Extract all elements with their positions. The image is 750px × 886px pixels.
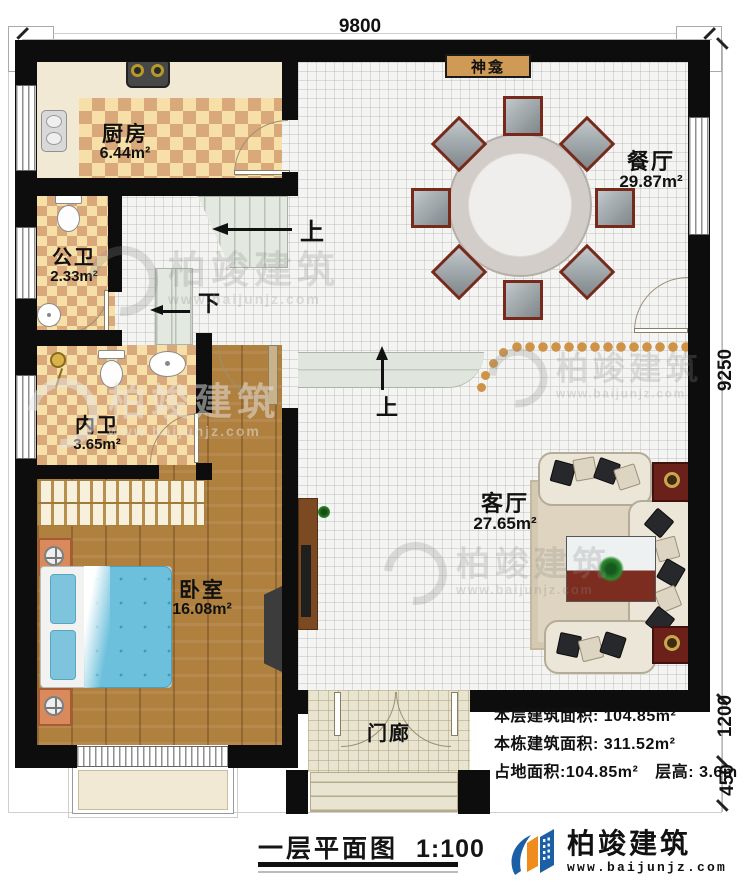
- hall-walkway: [298, 352, 484, 388]
- bed-pillow: [50, 630, 76, 680]
- hall-up-arrowhead: [376, 346, 388, 360]
- wardrobe: [37, 480, 205, 526]
- kitchen-sink-basin: [46, 132, 62, 145]
- living-tv: [301, 545, 311, 617]
- brand-name: 柏竣建筑: [567, 828, 691, 859]
- publicbath-door-leaf: [104, 290, 109, 334]
- dining-side-door-leaf: [634, 328, 688, 333]
- bead-curtain-dot: [477, 383, 486, 392]
- bead-curtain-dot: [499, 348, 508, 357]
- porch-steps: [310, 772, 458, 812]
- nightstand-lamp: [44, 696, 64, 716]
- shrine-label: 神龛: [471, 56, 505, 77]
- info-footprint-height: 占地面积:104.85m² 层高: 3.6m: [494, 758, 738, 782]
- dining-chair: [503, 280, 543, 320]
- toilet-bowl: [57, 205, 80, 232]
- dining-chair: [411, 188, 451, 228]
- dining-table-top: [468, 153, 572, 257]
- stairs-down-label: 下: [198, 286, 220, 318]
- nightstand-lamp: [44, 546, 64, 566]
- porch-post-bottomright: [458, 770, 490, 814]
- wall-publicbath-bottom: [15, 330, 122, 346]
- toilet-bowl: [100, 360, 123, 388]
- private-bath-label: 内卫 3.65m²: [54, 416, 140, 453]
- dining-chair: [503, 96, 543, 136]
- wall-privatebath-bottom: [37, 465, 159, 479]
- stairs-up-arrowhead: [212, 223, 228, 235]
- wall-top: [15, 40, 710, 62]
- washbasin-drain: [165, 361, 170, 366]
- brand-site: www.baijunjz.com: [567, 860, 727, 875]
- dim-top-9800: 9800: [320, 16, 400, 38]
- bedroom-door-leaf: [268, 345, 278, 405]
- bed-pillow: [50, 574, 76, 624]
- brand-logo-icon: [505, 825, 559, 881]
- window-bedroom-bay: [77, 746, 228, 767]
- stove-burner: [131, 64, 144, 77]
- wall-kitchen-right: [282, 62, 298, 120]
- wall-privatebath-right: [196, 333, 212, 413]
- wall-kitchen-bottom: [15, 178, 290, 196]
- privatebath-door-leaf: [194, 413, 199, 463]
- bead-curtain-dot: [489, 359, 498, 368]
- public-bath-label: 公卫 2.33m²: [34, 248, 114, 285]
- stairs-down-arrow: [162, 310, 190, 313]
- stairs-up-label: 上: [300, 212, 324, 247]
- hall-up-arrow: [381, 356, 384, 390]
- plan-title: 一层平面图 1:100: [258, 829, 485, 865]
- porch-post-topleft: [282, 690, 308, 714]
- toilet: [55, 195, 82, 204]
- coffee-table-plant: [598, 556, 624, 582]
- plant-small: [318, 506, 330, 518]
- wall-bedroom-bottom-left: [15, 745, 77, 768]
- side-table-ornament: [664, 635, 680, 651]
- living-label: 客厅 27.65m²: [460, 492, 550, 533]
- bedroom-label: 卧室 16.08m²: [152, 580, 252, 619]
- shrine: 神龛: [445, 54, 531, 78]
- bead-curtain-dot: [481, 371, 490, 380]
- window-publicbath: [16, 227, 36, 299]
- bay-window-sill: [78, 770, 228, 810]
- porch-label: 门廊: [344, 724, 434, 745]
- bed-duvet-fold: [84, 566, 110, 688]
- title-underline: [258, 862, 458, 867]
- toilet: [98, 350, 125, 359]
- wall-kitchen-right-lower: [282, 172, 298, 196]
- window-privatebath: [16, 375, 36, 459]
- entry-door-left-leaf: [334, 692, 341, 736]
- stove-burner: [151, 64, 164, 77]
- bead-curtain-row: [510, 340, 688, 354]
- hall-up-label: 上: [376, 390, 398, 422]
- stairs-down-arrowhead: [150, 305, 163, 315]
- dim-right-9250: 9250: [715, 342, 733, 398]
- washbasin-drain: [47, 313, 51, 317]
- info-building-area: 本栋建筑面积: 311.52m²: [494, 730, 675, 754]
- wall-privatebath-right-lower: [196, 463, 212, 480]
- window-kitchen: [16, 85, 36, 171]
- wall-bedroom-bottom-right: [228, 745, 295, 768]
- kitchen-sink-basin: [46, 115, 62, 128]
- stairs-up-arrow: [228, 228, 292, 231]
- floor-plan-canvas: 9800 9250 1200 450 上 下 上: [0, 0, 750, 886]
- dining-chair: [595, 188, 635, 228]
- dining-label: 餐厅 29.87m²: [606, 150, 696, 191]
- title-underline-thin: [258, 871, 458, 873]
- side-table-ornament: [664, 472, 680, 488]
- brand-logo: 柏竣建筑 www.baijunjz.com: [505, 824, 745, 882]
- porch-post-bottomleft: [286, 770, 308, 814]
- info-floor-area: 本层建筑面积: 104.85m²: [494, 702, 676, 726]
- dim-right-1200: 1200: [715, 688, 733, 744]
- bedroom-tv: [264, 586, 282, 672]
- plan-scale: 1:100: [416, 835, 485, 863]
- entry-door-right-leaf: [451, 692, 458, 736]
- wall-bedroom-right: [282, 408, 298, 768]
- shower-head: [50, 352, 66, 368]
- kitchen-label: 厨房 6.44m²: [80, 124, 170, 163]
